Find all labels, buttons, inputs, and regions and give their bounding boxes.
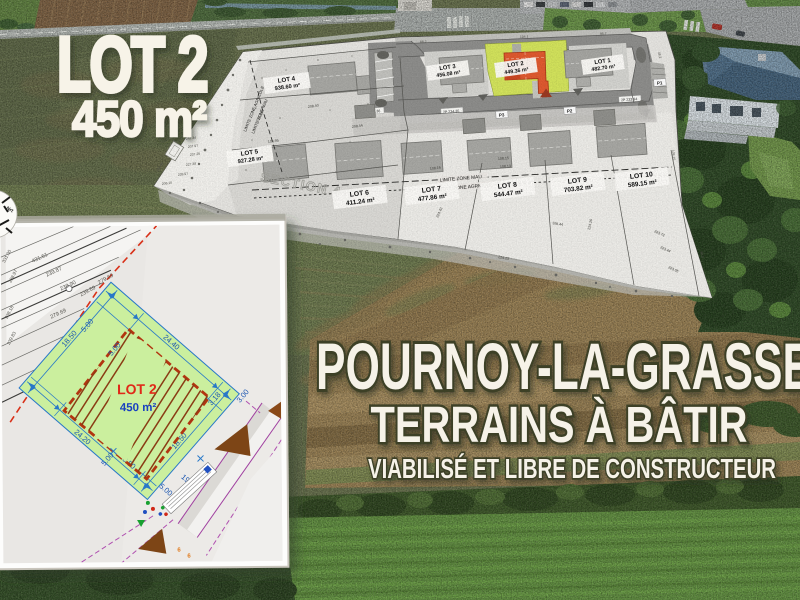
- svg-text:VIABILISÉ ET LIBRE DE CONSTRUC: VIABILISÉ ET LIBRE DE CONSTRUCTEUR: [368, 453, 776, 484]
- svg-text:LOT 2: LOT 2: [117, 381, 157, 397]
- svg-text:TERRAINS À BÂTIR: TERRAINS À BÂTIR: [371, 395, 748, 453]
- svg-text:POURNOY-LA-GRASSE: POURNOY-LA-GRASSE: [316, 329, 800, 403]
- svg-text:450 m²: 450 m²: [120, 402, 157, 414]
- svg-text:450 m²: 450 m²: [72, 91, 206, 147]
